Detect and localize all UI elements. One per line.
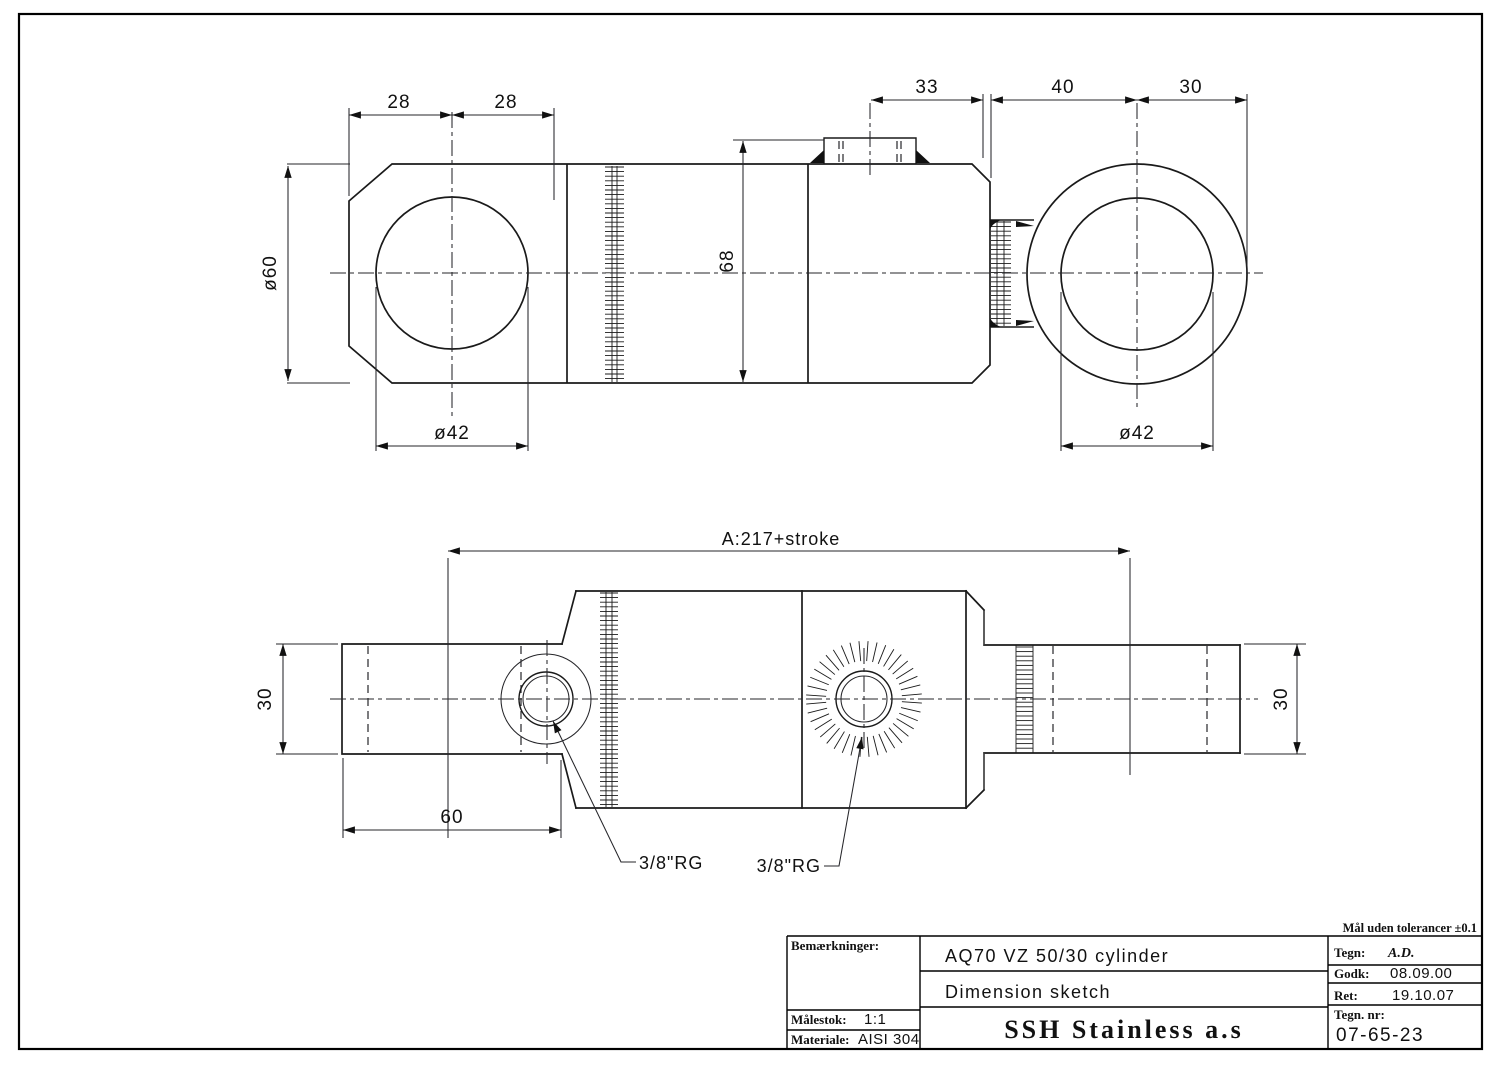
dim-28-right: 28 — [494, 92, 517, 113]
top-view: 28 28 33 40 30 ø60 68 ø42 ø4 — [260, 77, 1263, 451]
approved-value: 08.09.00 — [1390, 965, 1452, 982]
port1 — [501, 640, 591, 764]
port-leaders: 3/8"RG 3/8"RG — [553, 721, 862, 876]
revision-value: 19.10.07 — [1392, 987, 1454, 1004]
drawing-subtitle: Dimension sketch — [945, 982, 1111, 1002]
scale-value: 1:1 — [864, 1011, 886, 1028]
material-label: Materiale: — [791, 1032, 849, 1047]
material-value: AISI 304 — [858, 1031, 920, 1048]
revision-label: Ret: — [1334, 988, 1358, 1003]
dim-30-bottom-left: 30 — [255, 687, 276, 710]
dim-o42-left: ø42 — [434, 423, 470, 444]
bottom-view: A:217+stroke 30 30 60 3/8"RG 3/8"RG — [255, 529, 1306, 876]
drawing-sheet: 28 28 33 40 30 ø60 68 ø42 ø4 — [0, 0, 1503, 1072]
scale-label: Målestok: — [791, 1012, 847, 1027]
drawing-number-label: Tegn. nr: — [1334, 1007, 1385, 1022]
remarks-label: Bemærkninger: — [791, 938, 879, 953]
tolerance-note: Mål uden tolerancer ±0.1 — [1343, 921, 1477, 935]
dim-30-top: 30 — [1179, 77, 1202, 98]
dim-28-left: 28 — [387, 92, 410, 113]
dim-o60: ø60 — [260, 255, 281, 291]
dim-68: 68 — [717, 249, 738, 272]
top-view-dimensions: 28 28 33 40 30 ø60 68 ø42 ø4 — [260, 77, 1247, 451]
dim-33: 33 — [915, 77, 938, 98]
dim-40: 40 — [1051, 77, 1074, 98]
dim-o42-right: ø42 — [1119, 423, 1155, 444]
rod-thread-hatch-bottom — [1017, 647, 1033, 748]
drawing-title: AQ70 VZ 50/30 cylinder — [945, 946, 1169, 966]
bottom-view-dimensions: A:217+stroke 30 30 60 — [255, 529, 1306, 838]
tube-thread-band — [605, 166, 624, 382]
port2-label: 3/8"RG — [757, 856, 821, 876]
company-name: SSH Stainless a.s — [1004, 1015, 1244, 1044]
dim-60: 60 — [440, 807, 463, 828]
title-block: Mål uden tolerancer ±0.1 Bemærkninger: M… — [787, 921, 1482, 1049]
approved-label: Godk: — [1334, 966, 1369, 981]
drawn-value: A.D. — [1387, 946, 1414, 961]
centerlines — [330, 103, 1263, 420]
dim-30-bottom-right: 30 — [1271, 687, 1292, 710]
drawn-label: Tegn: — [1334, 945, 1365, 960]
dim-overall-length: A:217+stroke — [722, 529, 841, 549]
weld-mark — [810, 150, 824, 163]
drawing-number-value: 07-65-23 — [1336, 1025, 1424, 1046]
port1-label: 3/8"RG — [639, 853, 703, 873]
weld-mark — [916, 150, 930, 163]
